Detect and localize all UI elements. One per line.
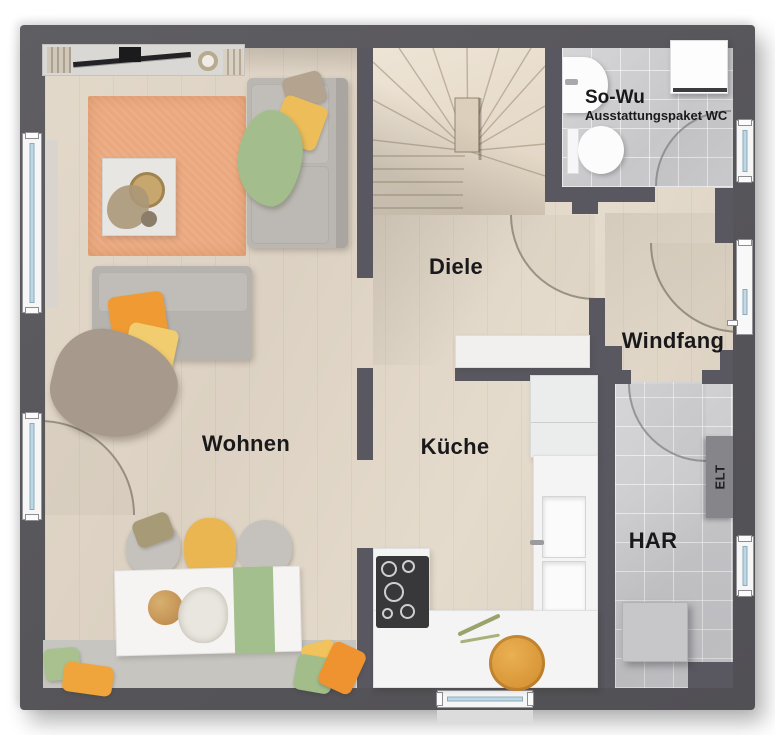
staircase <box>373 48 545 215</box>
branch-icon <box>457 613 500 636</box>
wc-cabinet <box>670 40 728 94</box>
stair-treads <box>373 48 545 215</box>
vase-icon <box>141 211 157 227</box>
books-icon <box>223 49 243 75</box>
floor-plan: ELT Wohnen Diele Küche Windfang HAR So-W… <box>0 0 775 735</box>
speaker-icon <box>198 51 218 71</box>
sink-basin <box>542 561 586 611</box>
har-appliance <box>622 602 688 662</box>
fruit-bowl-icon <box>489 635 545 691</box>
elt-panel: ELT <box>706 436 733 518</box>
wall-wc-bottom <box>545 187 655 202</box>
window-sill <box>45 140 58 308</box>
room-label-wohnen: Wohnen <box>202 431 290 457</box>
window-kitchen-sill <box>437 710 533 723</box>
stair-newel <box>455 98 479 152</box>
wall-wohnen-stairs <box>357 48 373 278</box>
door-handle <box>727 320 738 326</box>
cooktop <box>376 556 429 628</box>
wall-windfang-har-right <box>702 370 733 384</box>
room-label-diele: Diele <box>429 254 483 280</box>
kitchen-tall-cabinet <box>530 375 598 458</box>
coffee-table <box>102 158 176 236</box>
wall-har-niche <box>688 662 733 688</box>
dining-table <box>114 566 302 657</box>
branch-icon <box>460 634 500 644</box>
flowers-icon <box>177 586 228 643</box>
wall-kueche-har <box>598 368 615 688</box>
faucet-icon <box>565 79 578 85</box>
faucet-icon <box>530 540 544 545</box>
window-wc <box>736 120 754 182</box>
hall-sideboard <box>455 335 590 368</box>
wall-diele-door-stub <box>572 200 598 214</box>
wall-wc-left <box>545 48 562 202</box>
wall-wohnen-kueche-upper <box>357 368 373 460</box>
elt-label: ELT <box>712 464 727 489</box>
room-label-wc: So-Wu Ausstattungspaket WC <box>585 88 727 123</box>
terrace-door <box>22 413 42 520</box>
books-icon <box>47 47 71 73</box>
room-label-windfang: Windfang <box>622 328 724 354</box>
sink-basin <box>542 496 586 558</box>
wall-junction-pillar <box>596 346 622 370</box>
table-runner-green <box>233 566 275 654</box>
room-label-har: HAR <box>629 528 678 554</box>
room-label-kueche: Küche <box>421 434 490 460</box>
sideboard <box>42 44 245 76</box>
wall-entry-jamb <box>715 188 733 243</box>
window-har <box>736 536 754 596</box>
wall-windfang-har-left <box>615 370 631 384</box>
wc-package-title: So-Wu <box>585 88 727 108</box>
window-kitchen <box>437 690 533 708</box>
wc-package-subtitle: Ausstattungspaket WC <box>585 108 727 123</box>
toilet-icon <box>578 126 624 174</box>
media-box-icon <box>119 47 141 62</box>
entry-door <box>736 240 753 335</box>
window-living-top <box>22 133 42 313</box>
